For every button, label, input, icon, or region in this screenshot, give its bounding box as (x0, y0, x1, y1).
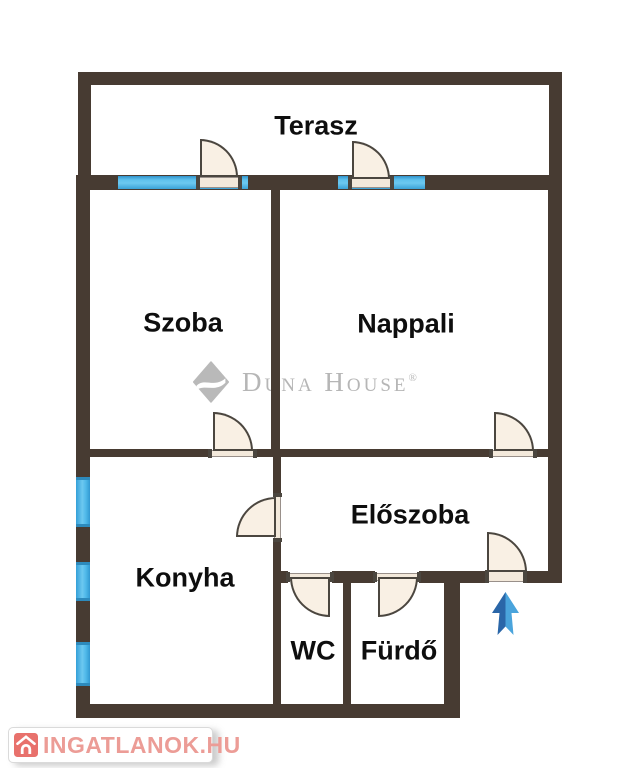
wall-middle-segment-2 (255, 449, 491, 457)
door-wc-icon (290, 577, 330, 617)
window-left-wall-2 (76, 562, 90, 601)
duna-house-logo-icon (193, 360, 229, 404)
room-label-szoba: Szoba (143, 308, 223, 339)
room-label-nappali: Nappali (357, 309, 455, 340)
registered-mark: ® (409, 372, 417, 384)
room-label-furdo: Fürdő (361, 636, 437, 667)
wall-szoba-nappali-divider (271, 189, 280, 449)
wall-konyha-eloszoba-upper (273, 457, 281, 495)
ingatlanok-wordmark: INGATLANOK.HU (43, 732, 241, 759)
room-label-terasz: Terasz (274, 111, 358, 142)
entrance-arrow-icon (492, 592, 519, 642)
duna-house-watermark: Duna House® (193, 360, 417, 404)
window-left-wall-1 (76, 477, 90, 527)
room-label-wc: WC (291, 636, 336, 667)
door-szoba-icon (213, 412, 253, 451)
wall-middle-segment-1 (90, 449, 210, 457)
wall-furdo-right (444, 583, 460, 704)
wall-south-segment-2 (332, 571, 375, 583)
door-nappali-icon (494, 412, 534, 451)
door-furdo-icon (378, 577, 418, 617)
door-konyha-icon (236, 497, 276, 537)
wall-south-segment-4 (524, 571, 562, 583)
wall-apartment-left (76, 175, 90, 718)
floor-plan-canvas: Duna House® Terasz Szoba Nappali Előszob… (0, 0, 617, 768)
threshold-nappali-door (492, 450, 534, 457)
threshold-entrance-door (488, 571, 524, 582)
threshold-terrace-door-1 (199, 177, 239, 188)
wall-konyha-wc-lower (273, 540, 281, 704)
door-entrance-icon (487, 532, 527, 572)
ingatlanok-watermark: INGATLANOK.HU (8, 727, 213, 763)
wall-apartment-right (548, 175, 562, 583)
wall-apartment-bottom (76, 704, 460, 718)
wall-terrace-top (78, 72, 562, 85)
window-left-wall-3 (76, 642, 90, 686)
room-label-konyha: Konyha (135, 563, 234, 594)
wall-wc-furdo-divider (343, 582, 351, 704)
door-terrace-1-icon (200, 139, 238, 177)
door-terrace-2-icon (352, 141, 390, 179)
wall-terrace-right (549, 72, 562, 179)
threshold-szoba-door (211, 450, 254, 457)
wall-south-segment-3 (419, 571, 487, 583)
duna-house-wordmark: Duna House® (242, 369, 417, 396)
ingatlanok-house-icon (14, 733, 38, 757)
room-label-eloszoba: Előszoba (351, 500, 470, 531)
wall-terrace-left (78, 72, 91, 179)
